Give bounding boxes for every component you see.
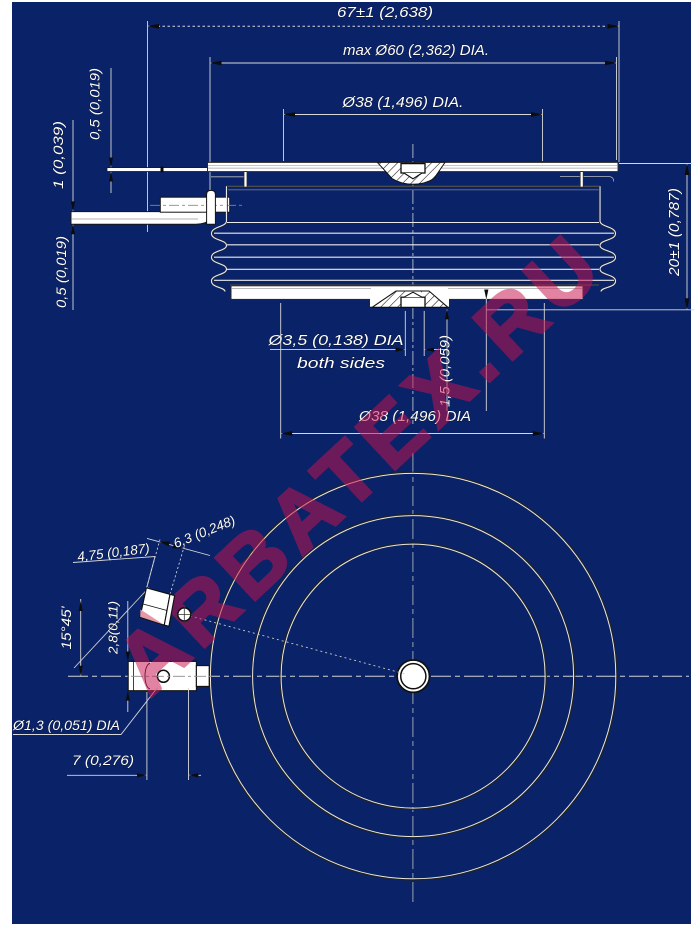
svg-text:max Ø60 (2,362) DIA.: max Ø60 (2,362) DIA. [343, 42, 489, 59]
svg-text:15°45': 15°45' [58, 605, 74, 649]
svg-text:both sides: both sides [297, 356, 385, 372]
svg-text:0,5 (0,019): 0,5 (0,019) [53, 236, 69, 308]
svg-text:0,5 (0,019): 0,5 (0,019) [87, 68, 103, 140]
svg-text:Ø1,3 (0,051) DIA: Ø1,3 (0,051) DIA [12, 718, 120, 733]
svg-text:Ø3,5 (0,138) DIA: Ø3,5 (0,138) DIA [267, 332, 403, 349]
svg-text:Ø38 (1,496) DIA.: Ø38 (1,496) DIA. [341, 94, 463, 111]
svg-text:7 (0,276): 7 (0,276) [72, 752, 134, 768]
svg-text:20±1 (0,787): 20±1 (0,787) [666, 188, 683, 277]
svg-text:67±1 (2,638): 67±1 (2,638) [337, 4, 433, 21]
svg-text:1 (0,039): 1 (0,039) [50, 121, 66, 189]
